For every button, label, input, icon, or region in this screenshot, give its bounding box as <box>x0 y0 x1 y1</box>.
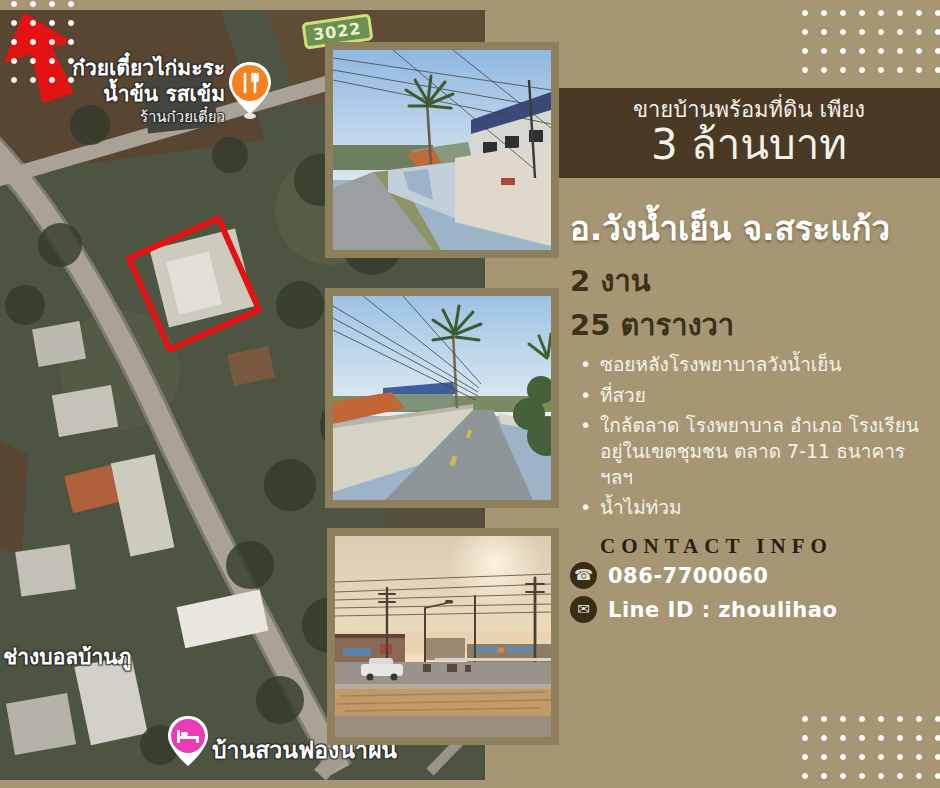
area-wa: 25 ตารางวา <box>570 302 734 348</box>
photo1-scene <box>333 50 551 250</box>
envelope-icon: ✉ <box>570 596 597 623</box>
contact-line-row: ✉ Line ID : zhoulihao <box>570 596 837 623</box>
location-heading: อ.วังน้ำเย็น จ.สระแก้ว <box>570 202 890 255</box>
header-subtitle: ขายบ้านพร้อมที่ดิน เพียง <box>633 98 865 122</box>
feature-list: ซอยหลังโรงพยาบาลวังน้ำเย็น ที่สวย ใกล้ตล… <box>578 352 930 526</box>
phone-icon: ☎ <box>570 562 597 589</box>
feature-item: ที่สวย <box>578 383 930 409</box>
photo2-scene <box>333 296 551 500</box>
restaurant-pin-icon <box>226 60 274 120</box>
contact-phone-row: ☎ 086-7700060 <box>570 562 768 589</box>
photo3-scene <box>335 536 551 737</box>
lodging-pin-icon <box>165 714 211 772</box>
noodle-line3: ร้านก๋วยเตี๋ยว <box>35 108 225 127</box>
phone-number: 086-7700060 <box>608 564 768 588</box>
contact-info-heading: CONTACT INFO <box>600 534 833 559</box>
map-label-football-shop: ช่างบอลบ้านภู <box>3 640 131 673</box>
photo-street-view-3 <box>327 528 559 745</box>
dot-pattern-bottom-right <box>796 710 940 786</box>
area-rai: 2 งาน <box>570 258 651 304</box>
photo-street-view-2 <box>325 288 559 508</box>
line-id: Line ID : zhoulihao <box>608 598 837 622</box>
feature-item: น้ำไม่ท่วม <box>578 495 930 521</box>
feature-item: ซอยหลังโรงพยาบาลวังน้ำเย็น <box>578 352 930 378</box>
dot-pattern-top-left <box>5 0 81 90</box>
photo-street-view-1 <box>325 42 559 258</box>
header-price: 3 ล้านบาท <box>651 122 847 168</box>
feature-item: ใกล้ตลาด โรงพยาบาล อำเภอ โรงเรียน อยู่ใน… <box>578 413 930 490</box>
real-estate-flyer: ก๋วยเตี๋ยวไก่มะระ น้ำข้น รสเข้ม ร้านก๋วย… <box>0 0 940 788</box>
dot-pattern-top-right <box>796 4 940 80</box>
price-header-band: ขายบ้านพร้อมที่ดิน เพียง 3 ล้านบาท <box>558 88 940 178</box>
